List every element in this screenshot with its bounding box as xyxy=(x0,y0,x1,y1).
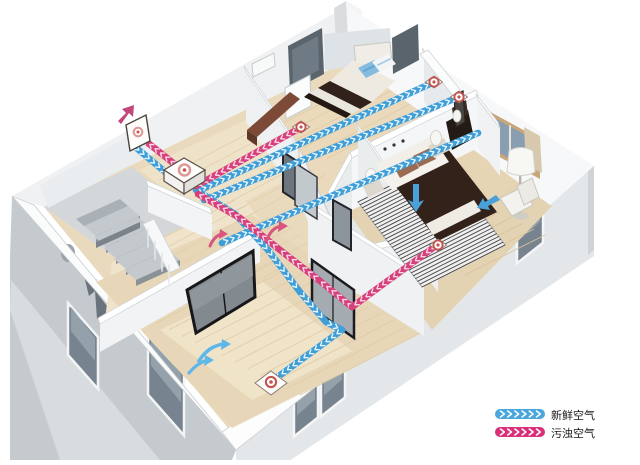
svg-text:新鲜空气: 新鲜空气 xyxy=(551,408,595,422)
svg-text:污浊空气: 污浊空气 xyxy=(551,426,595,440)
